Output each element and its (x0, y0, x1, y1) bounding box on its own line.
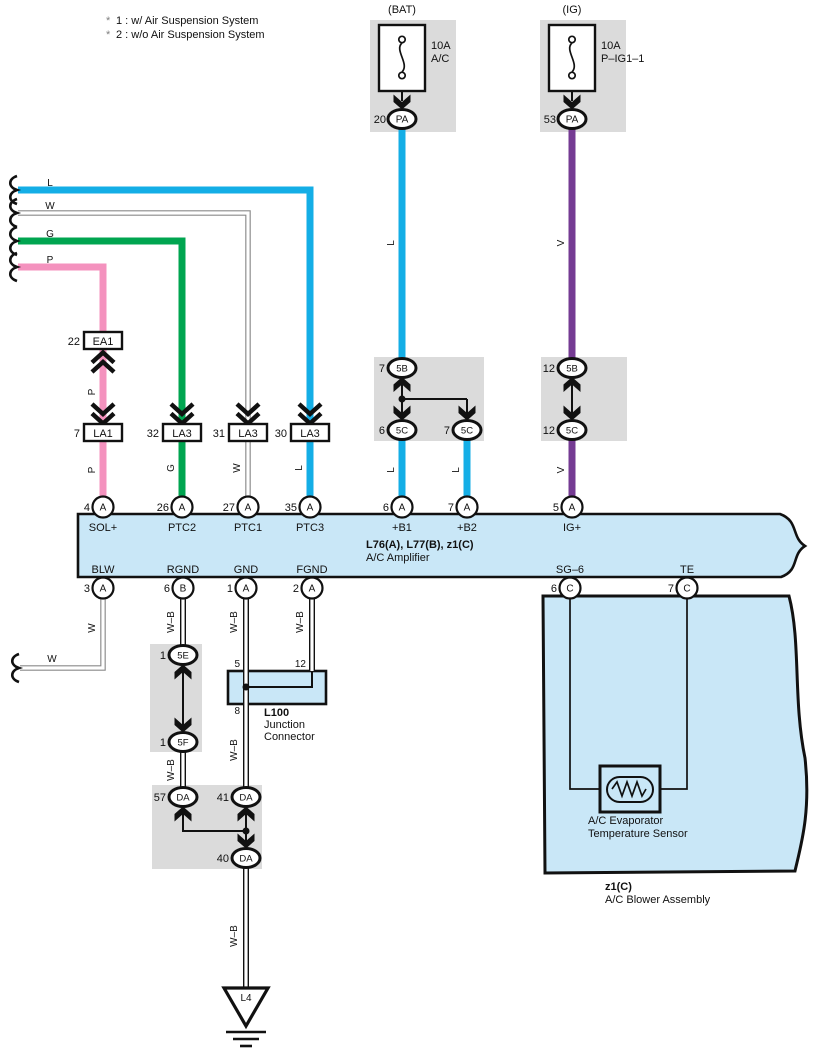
connector-ea1-label: EA1 (93, 336, 114, 348)
legend: * 1 : w/ Air Suspension System * 2 : w/o… (106, 15, 265, 41)
connector-la3l-label: LA3 (300, 428, 320, 440)
ig-fuse-name: P–IG1–1 (601, 53, 644, 65)
pin-number: 1 (227, 583, 233, 595)
pin-number: 27 (223, 502, 235, 514)
ig-fuse-rating: 10A (601, 40, 621, 52)
pin-connector: A (307, 503, 314, 514)
pin-connector: A (464, 503, 471, 514)
connector-la3w-pin: 31 (213, 428, 225, 440)
pin-connector: C (683, 584, 690, 595)
pin-connector: A (399, 503, 406, 514)
terminal-label: 5F (177, 738, 188, 749)
pin-connector: A (100, 584, 107, 595)
terminal-pin: 41 (217, 792, 229, 804)
pin-connector: A (245, 503, 252, 514)
wire-color-label: G (166, 464, 177, 472)
pin-number: 2 (293, 583, 299, 595)
pin-number: 6 (383, 502, 389, 514)
wire-color-label: W–B (229, 611, 240, 633)
pin-number: 6 (164, 583, 170, 595)
wire-color-label: W–B (229, 739, 240, 761)
amplifier-title: L76(A), L77(B), z1(C) (366, 539, 474, 551)
ig-terminal-name: PA (566, 115, 579, 126)
amplifier-subtitle: A/C Amplifier (366, 552, 430, 564)
ig-source-label: (IG) (563, 4, 582, 16)
terminal-pin: 6 (379, 425, 385, 437)
pin-number: 7 (668, 583, 674, 595)
pin-label: SG–6 (556, 564, 584, 576)
pin-connector: A (569, 503, 576, 514)
pin-label: RGND (167, 564, 199, 576)
l100-name: L100 (264, 707, 289, 719)
blower-code: z1(C) (605, 881, 632, 893)
connector-la1-pin: 7 (74, 428, 80, 440)
bat-terminal-name: PA (396, 115, 409, 126)
pin-label: BLW (91, 564, 115, 576)
wire-color-label: V (556, 239, 567, 246)
wire-white-w (18, 213, 248, 668)
l100-desc: Junction (264, 719, 305, 731)
terminal-pin: 12 (543, 425, 555, 437)
wire-color-label: P (87, 388, 98, 395)
pin-number: 6 (551, 583, 557, 595)
terminal-label: 5C (461, 426, 473, 437)
terminal-label: 5C (396, 426, 408, 437)
junction-dot (243, 684, 250, 691)
wire-color-label: W–B (295, 611, 306, 633)
terminal-label: 5B (396, 364, 408, 375)
pin-connector: B (180, 584, 187, 595)
pin-number: 4 (84, 502, 90, 514)
junction-dot (399, 396, 406, 403)
connector-ea1-pin: 22 (68, 336, 80, 348)
wire-color-label: W–B (166, 611, 177, 633)
pin-label: PTC2 (168, 522, 196, 534)
wire-color-label: P (87, 466, 98, 473)
wiring-diagram-page: * 1 : w/ Air Suspension System * 2 : w/o… (0, 0, 815, 1063)
terminal-pin: 1 (160, 737, 166, 749)
pin-connector: A (309, 584, 316, 595)
terminal-label: DA (239, 793, 253, 804)
wire-color-label: V (556, 466, 567, 473)
continuation-marks (10, 176, 19, 682)
terminal-pin: 1 (160, 650, 166, 662)
pin-label: IG+ (563, 522, 581, 534)
terminal-label: 5B (566, 364, 578, 375)
connector-boxes (84, 332, 329, 441)
sensor-label: A/C Evaporator (588, 815, 664, 827)
pin-label: PTC3 (296, 522, 324, 534)
wire-color-label: L (386, 240, 397, 246)
pin-number: 5 (553, 502, 559, 514)
continuation-mark (12, 654, 19, 682)
blower-name: A/C Blower Assembly (605, 894, 711, 906)
terminal-label: DA (239, 854, 253, 865)
pin-label: FGND (296, 564, 327, 576)
bat-fuse-rating: 10A (431, 40, 451, 52)
wire-color-label: W–B (166, 759, 177, 781)
pin-connector: A (243, 584, 250, 595)
terminal-pin: 12 (543, 363, 555, 375)
legend-note-1: 1 : w/ Air Suspension System (116, 15, 258, 27)
ground-label: L4 (240, 993, 252, 1004)
sensor-label: Temperature Sensor (588, 828, 688, 840)
pin-connector: C (566, 584, 573, 595)
wire-color-label: W (45, 201, 55, 212)
pin-number: 3 (84, 583, 90, 595)
wire-pink-p (18, 267, 103, 500)
wire-color-label: L (386, 467, 397, 473)
wire-color-label: L (47, 178, 53, 189)
wire-color-label: L (294, 465, 305, 471)
pin-label: GND (234, 564, 259, 576)
wire-color-label: W (87, 623, 98, 633)
pin-label: +B1 (392, 522, 412, 534)
l100-desc: Connector (264, 731, 315, 743)
ig-terminal-pin: 53 (544, 114, 556, 126)
wire-color-label: L (451, 467, 462, 473)
legend-star: * (106, 29, 111, 41)
bat-source-label: (BAT) (388, 4, 416, 16)
connector-la3l-pin: 30 (275, 428, 287, 440)
legend-star: * (106, 15, 111, 27)
wire-blue-l (18, 128, 467, 500)
wire-color-label: W (47, 654, 57, 665)
terminal-pin: 7 (379, 363, 385, 375)
terminal-label: 5C (566, 426, 578, 437)
pin-connector: A (179, 503, 186, 514)
continuation-mark (10, 253, 17, 281)
terminal-pin: 7 (444, 425, 450, 437)
legend-note-2: 2 : w/o Air Suspension System (116, 29, 265, 41)
connector-la3g-pin: 32 (147, 428, 159, 440)
wire-color-label: G (46, 229, 54, 240)
l100-pin-branch: 12 (295, 659, 307, 670)
wire-color-label: W–B (229, 925, 240, 947)
bat-fuse-name: A/C (431, 53, 449, 65)
connector-la1-label: LA1 (93, 428, 113, 440)
wire-color-label: W (232, 463, 243, 473)
pin-label: TE (680, 564, 694, 576)
connector-la3g-label: LA3 (172, 428, 192, 440)
l100-pin-bottom: 8 (234, 706, 240, 717)
terminal-label: 5E (177, 651, 189, 662)
pin-label: PTC1 (234, 522, 262, 534)
pin-number: 35 (285, 502, 297, 514)
wiring-diagram: * 1 : w/ Air Suspension System * 2 : w/o… (0, 0, 815, 1063)
pin-number: 26 (157, 502, 169, 514)
l100-pin-top: 5 (234, 659, 240, 670)
bat-terminal-pin: 20 (374, 114, 386, 126)
terminal-pin: 57 (154, 792, 166, 804)
terminal-pin: 40 (217, 853, 229, 865)
connector-la3w-label: LA3 (238, 428, 258, 440)
pin-label: SOL+ (89, 522, 117, 534)
pin-connector: A (100, 503, 107, 514)
junction-dot (243, 828, 250, 835)
pin-label: +B2 (457, 522, 477, 534)
wire-color-label: P (47, 255, 54, 266)
terminal-label: DA (176, 793, 190, 804)
pin-number: 7 (448, 502, 454, 514)
continuation-mark (10, 227, 17, 255)
